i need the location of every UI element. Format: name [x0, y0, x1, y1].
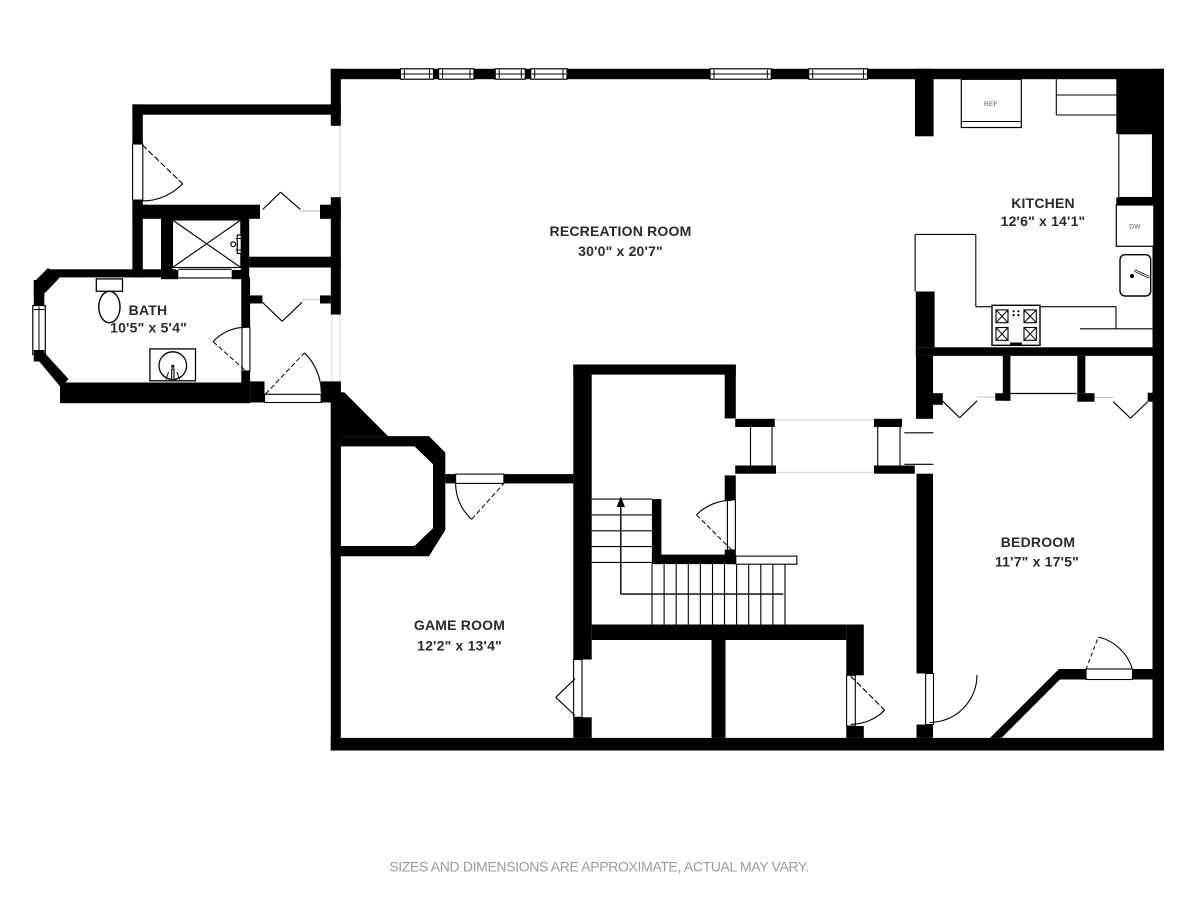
svg-text:10'5" x 5'4": 10'5" x 5'4": [110, 320, 187, 336]
svg-text:BEDROOM: BEDROOM: [1001, 534, 1076, 550]
svg-text:12'6" x 14'1": 12'6" x 14'1": [1001, 213, 1086, 229]
svg-text:GAME ROOM: GAME ROOM: [414, 617, 505, 633]
svg-text:30'0" x 20'7": 30'0" x 20'7": [578, 243, 663, 259]
svg-text:KITCHEN: KITCHEN: [1011, 195, 1075, 211]
svg-text:DW: DW: [1129, 224, 1141, 231]
svg-text:12'2" x 13'4": 12'2" x 13'4": [417, 638, 502, 654]
svg-text:RECREATION ROOM: RECREATION ROOM: [550, 223, 692, 239]
svg-text:BATH: BATH: [129, 302, 168, 318]
svg-text:SIZES AND DIMENSIONS ARE APPRO: SIZES AND DIMENSIONS ARE APPROXIMATE, AC…: [389, 859, 808, 875]
svg-text:11'7" x 17'5": 11'7" x 17'5": [995, 554, 1079, 570]
svg-text:REF: REF: [984, 101, 998, 108]
